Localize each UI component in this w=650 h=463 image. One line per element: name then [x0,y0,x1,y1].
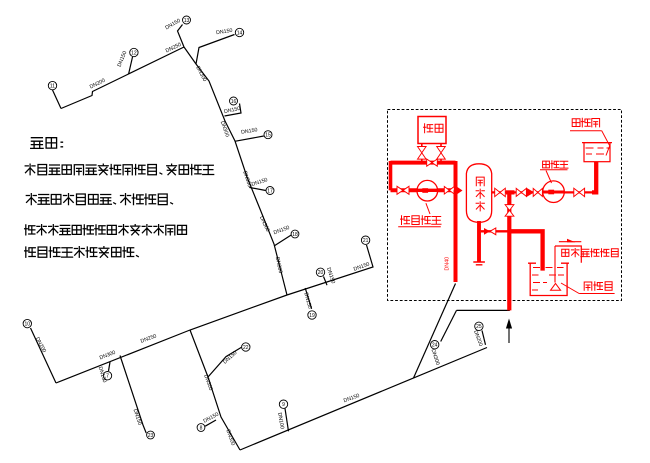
svg-text:23: 23 [148,433,154,439]
svg-text:DN150: DN150 [343,393,361,404]
svg-text:9: 9 [282,402,285,408]
svg-text:DN150: DN150 [273,225,291,236]
svg-text:DN300: DN300 [430,348,441,366]
svg-text:12: 12 [131,50,137,56]
svg-text:DN200: DN200 [34,336,47,353]
svg-text:22: 22 [243,345,249,351]
svg-text:16: 16 [231,99,237,105]
svg-text:DN300: DN300 [194,65,207,82]
svg-text:DN150: DN150 [97,366,108,384]
svg-text:20: 20 [318,270,324,276]
svg-text:DN250: DN250 [140,333,158,344]
svg-text:13: 13 [184,18,190,24]
svg-text:DN40: DN40 [444,257,450,271]
svg-text:DN150: DN150 [302,292,312,310]
svg-text:DN150: DN150 [216,28,233,37]
svg-text:DN150: DN150 [251,177,269,188]
svg-text:DN300: DN300 [258,215,270,233]
svg-text:19: 19 [309,313,315,319]
svg-text:DN150: DN150 [222,350,238,366]
svg-text:21: 21 [363,238,369,244]
svg-text:DN150: DN150 [117,50,129,68]
svg-text:17: 17 [267,188,273,194]
svg-text:DN150: DN150 [241,127,258,136]
svg-text:8: 8 [200,425,203,431]
svg-text:DN300: DN300 [241,170,252,188]
svg-text:10: 10 [25,321,31,327]
svg-text:DN150: DN150 [132,408,143,426]
svg-text:11: 11 [50,83,55,89]
svg-text:15: 15 [265,133,271,139]
svg-text:18: 18 [292,232,298,238]
svg-text:14: 14 [237,30,243,36]
svg-text:DN300: DN300 [219,120,230,138]
svg-text:DN300: DN300 [224,429,235,447]
svg-text:DN200: DN200 [472,330,483,348]
svg-text:DN300: DN300 [274,257,283,274]
svg-text:DN100: DN100 [276,412,285,429]
